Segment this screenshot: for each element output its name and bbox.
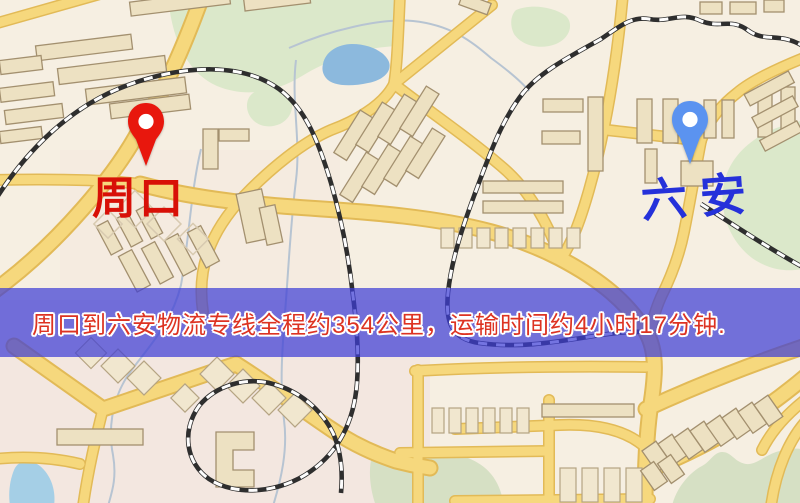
origin-pin-icon[interactable]: [126, 102, 166, 168]
map-image: [0, 0, 800, 503]
destination-city-label: 六安: [640, 170, 761, 224]
map-viewport: 周口到六安物流专线全程约354公里，运输时间约4小时17分钟. 周口 六安: [0, 0, 800, 503]
destination-pin-icon[interactable]: [670, 100, 710, 166]
route-summary-banner: 周口到六安物流专线全程约354公里，运输时间约4小时17分钟.: [0, 288, 800, 357]
origin-city-label: 周口: [92, 177, 186, 221]
route-summary-text: 周口到六安物流专线全程约354公里，运输时间约4小时17分钟.: [0, 305, 726, 340]
